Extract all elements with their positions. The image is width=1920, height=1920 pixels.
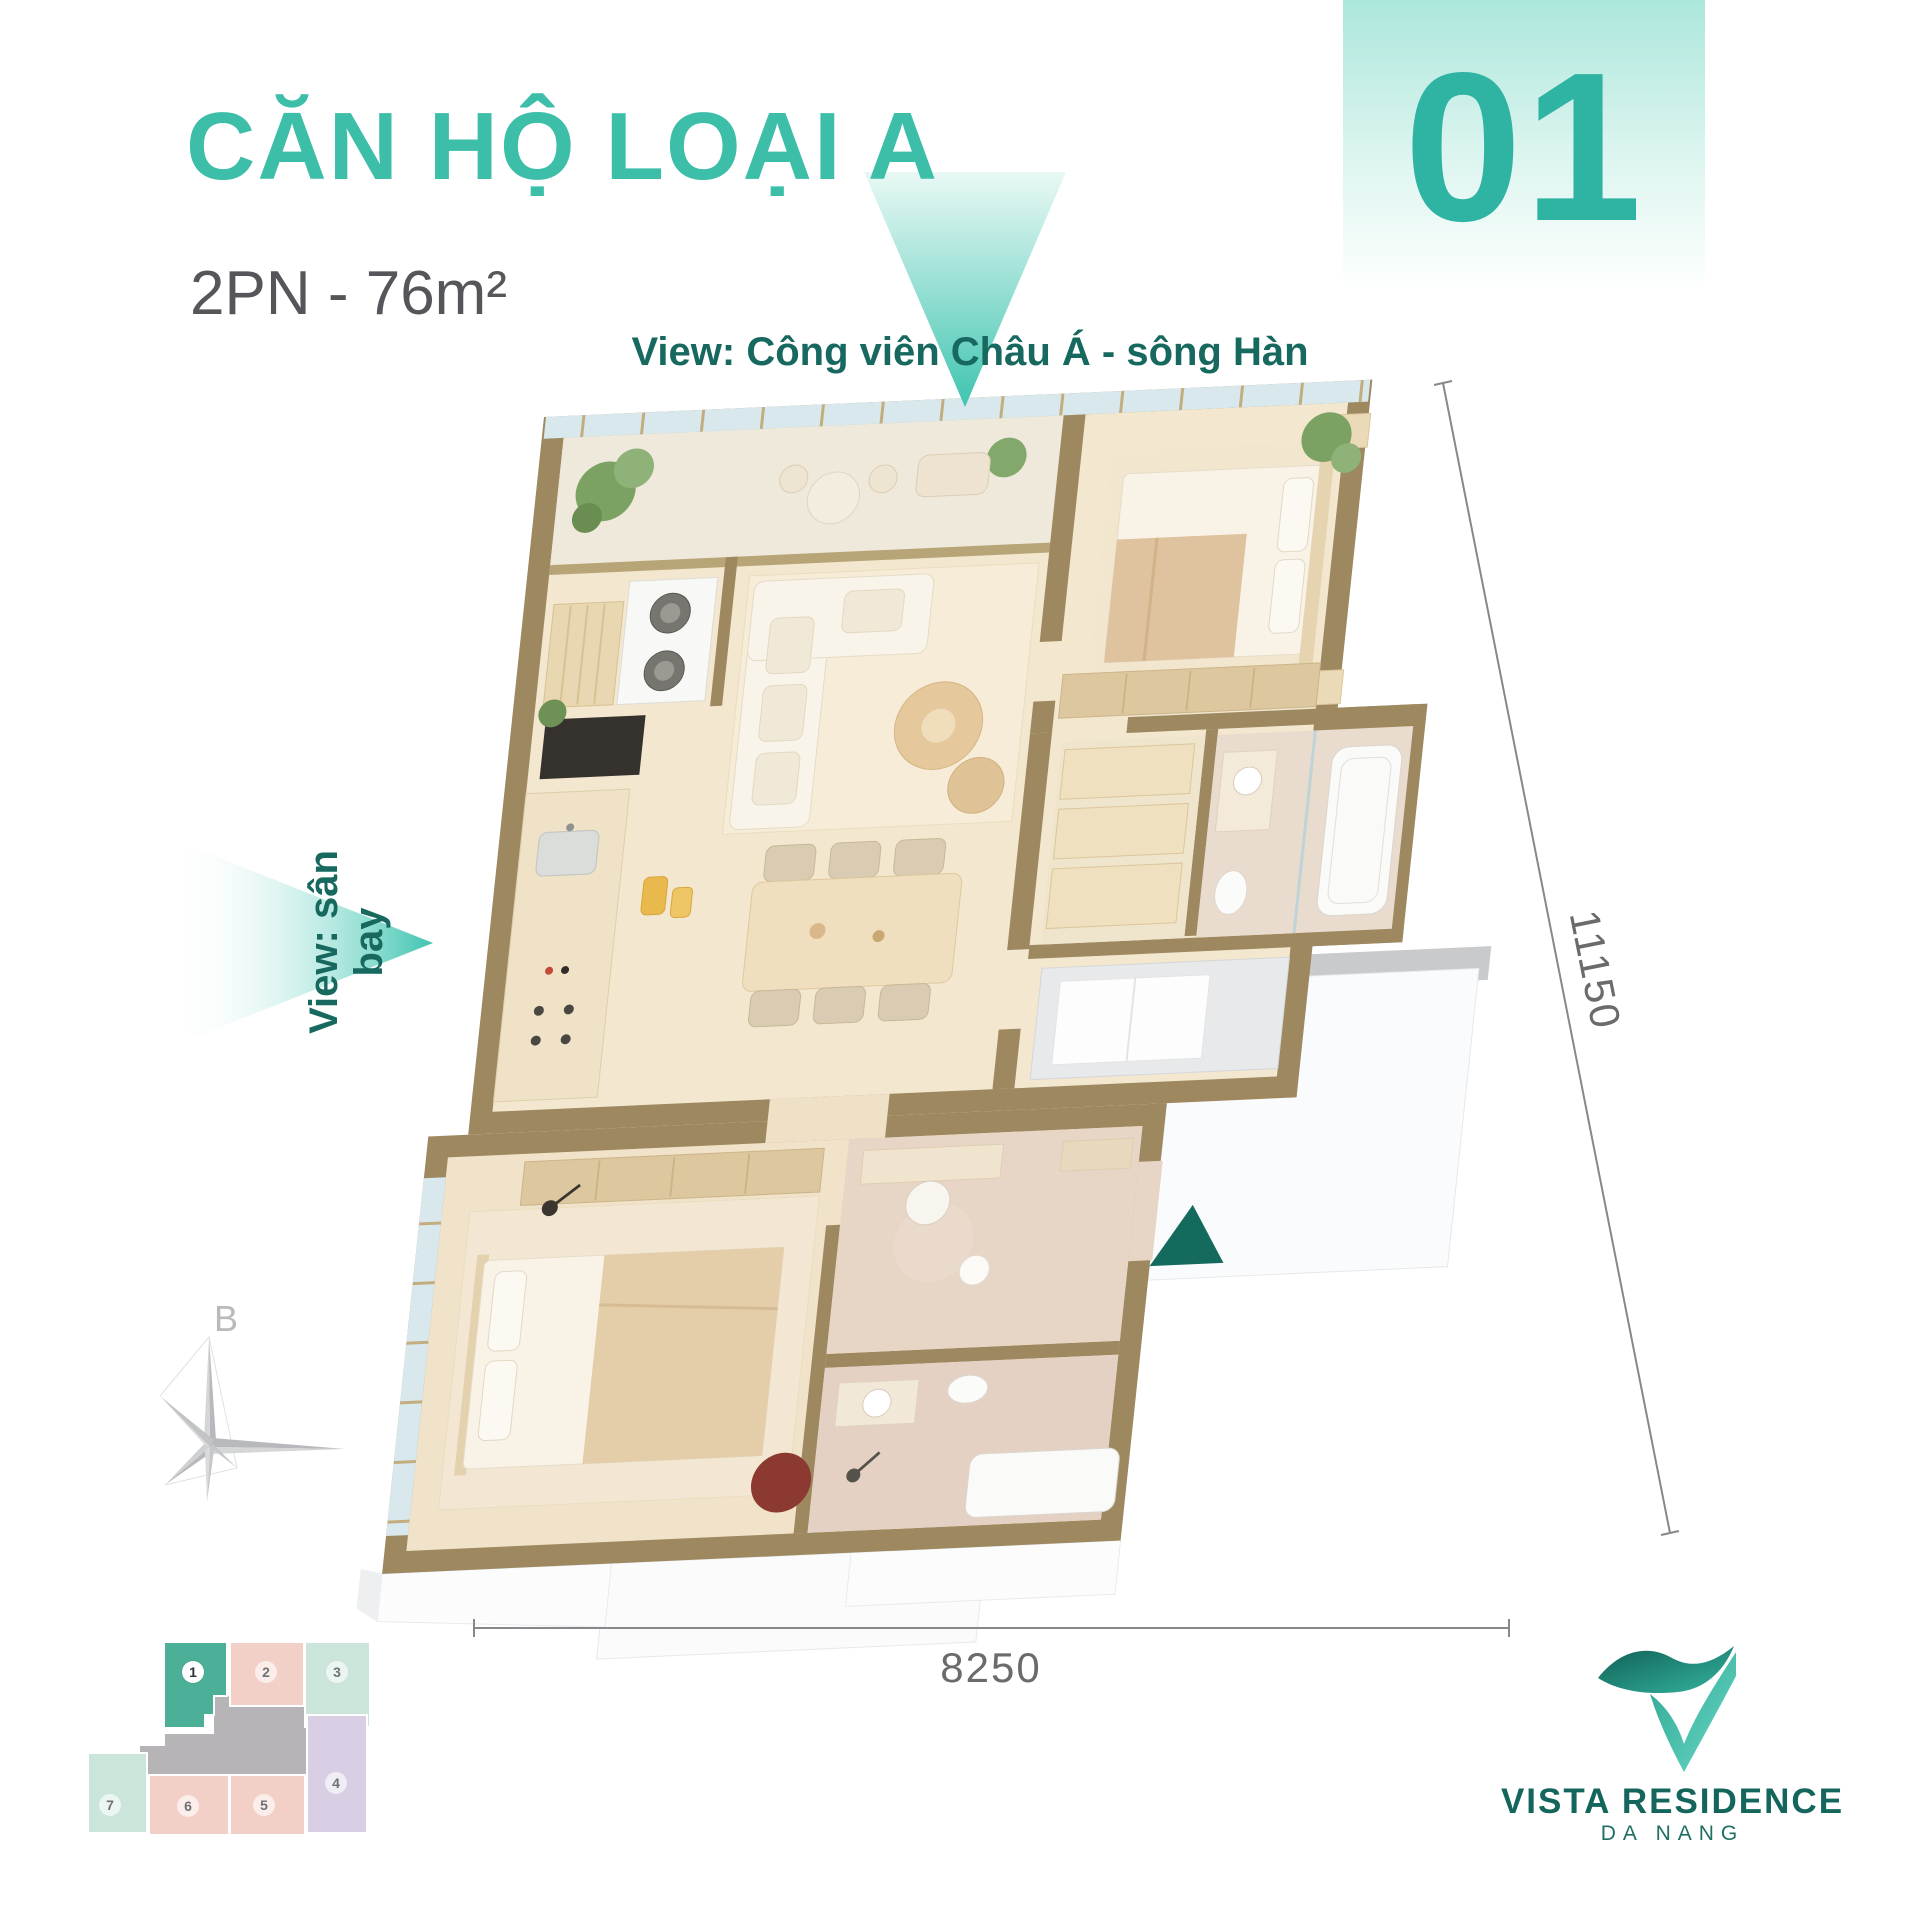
view-label-top: View: Công viên Châu Á - sông Hàn	[600, 330, 1340, 375]
key-plan-badge-4: 4	[325, 1772, 347, 1794]
key-plan-unit-7	[88, 1753, 147, 1833]
compass-north-label: B	[206, 1298, 246, 1340]
bathroom-2	[808, 1354, 1131, 1533]
unit-number: 01	[1404, 35, 1644, 253]
unit-number-badge: 01	[1343, 0, 1705, 288]
key-plan-badge-1: 1	[182, 1661, 204, 1683]
dimension-width-label: 8250	[891, 1644, 1091, 1692]
floorplan-render	[350, 372, 1552, 1671]
key-plan-badge-5: 5	[253, 1794, 275, 1816]
brochure-page: CĂN HỘ LOẠI A 2PN - 76m² 01 View: Công v…	[0, 0, 1920, 1920]
page-subtitle: 2PN - 76m²	[190, 258, 507, 329]
logo-name: VISTA RESIDENCE	[1500, 1782, 1845, 1822]
logo-mark-icon	[1598, 1646, 1736, 1772]
view-label-left: View: sân bay	[302, 812, 344, 1072]
master-bath	[1041, 726, 1414, 945]
key-plan-corridor	[126, 1696, 320, 1776]
page-title: CĂN HỘ LOẠI A	[186, 92, 939, 202]
core-lobby	[1030, 957, 1289, 1079]
key-plan-badge-2: 2	[255, 1661, 277, 1683]
entry-hall	[826, 1126, 1142, 1354]
living-room	[722, 563, 1039, 834]
doorway-living-hall	[765, 1094, 889, 1143]
key-plan-badge-6: 6	[177, 1795, 199, 1817]
key-plan-badge-3: 3	[326, 1661, 348, 1683]
compass-icon	[160, 1337, 345, 1502]
key-plan-badge-7: 7	[99, 1794, 121, 1816]
logo-location: DA NANG	[1500, 1822, 1845, 1846]
